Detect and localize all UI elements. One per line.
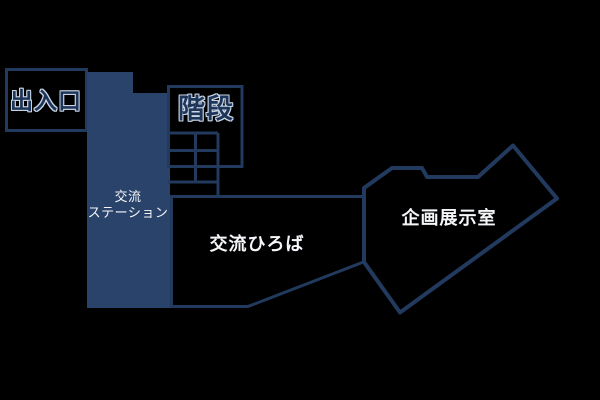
- floor-map-drawing: [0, 0, 600, 400]
- plaza-room-outline: [172, 197, 364, 307]
- stairs-steps-grid: [168, 133, 218, 196]
- floor-map: 出入口 階段 交流 ステーション 交流ひろば 企画展示室: [0, 0, 600, 400]
- station-room-shape: [87, 72, 170, 308]
- stairs-room-outline: [169, 87, 243, 167]
- exhibition-room-outline: [364, 146, 557, 313]
- entrance-room-outline: [7, 70, 87, 131]
